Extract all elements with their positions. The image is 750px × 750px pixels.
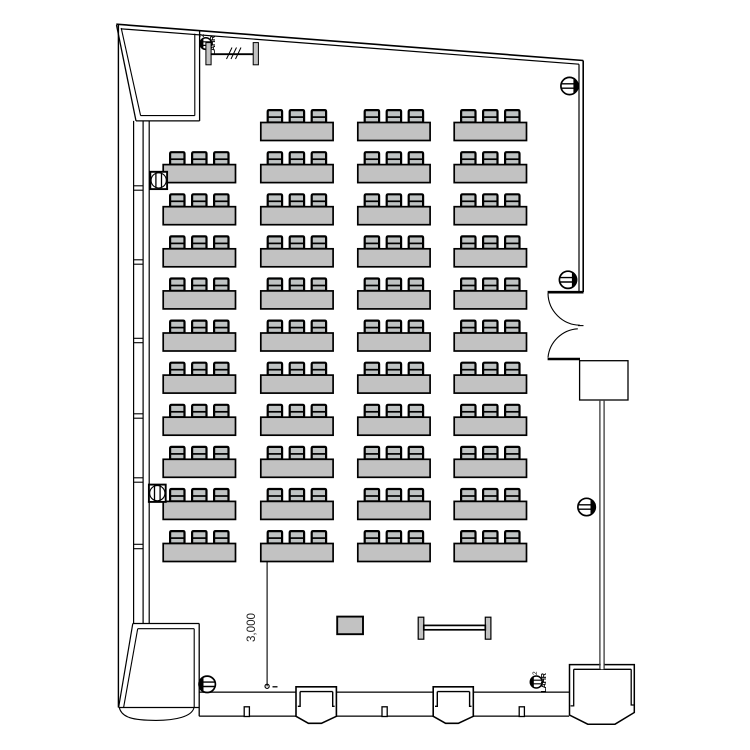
- svg-text:3,000: 3,000: [245, 613, 258, 642]
- svg-text:2: 2: [199, 33, 206, 37]
- svg-text:2: 2: [532, 671, 539, 675]
- svg-text:LAHR: LAHR: [539, 672, 548, 692]
